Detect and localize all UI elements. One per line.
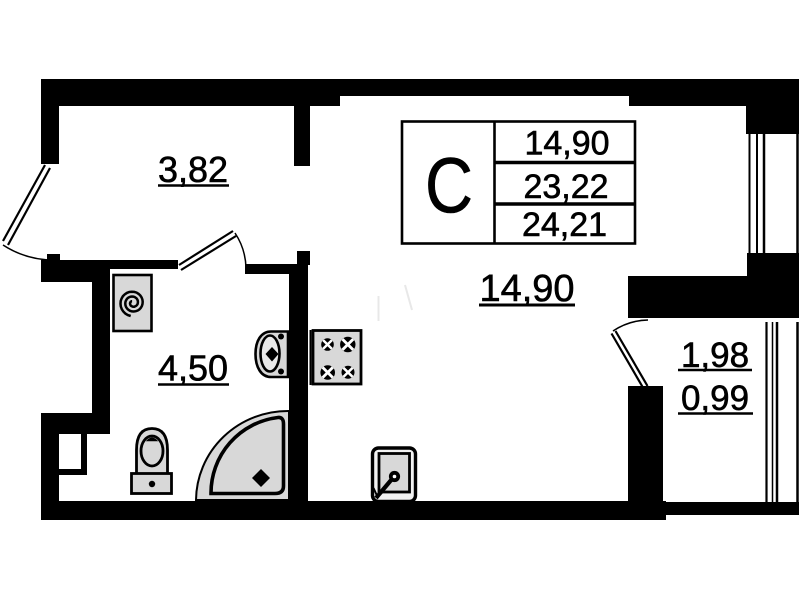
- svg-text:23,22: 23,22: [523, 168, 608, 206]
- svg-text:14,90: 14,90: [524, 125, 609, 163]
- svg-text:3,82: 3,82: [158, 149, 228, 190]
- svg-text:24,21: 24,21: [522, 206, 607, 244]
- svg-text:0,99: 0,99: [681, 379, 749, 418]
- svg-text:С: С: [425, 141, 473, 229]
- svg-text:4,50: 4,50: [158, 348, 228, 389]
